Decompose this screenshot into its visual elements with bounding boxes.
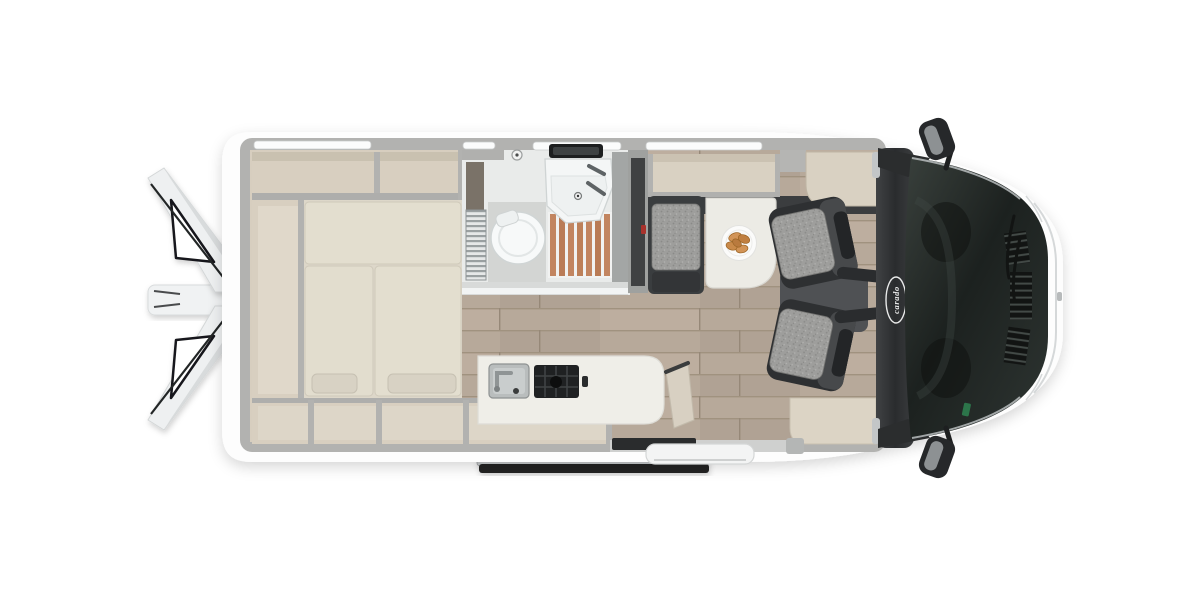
bathroom-sink: [545, 159, 613, 223]
kitchen-sink: [489, 364, 529, 398]
tambour-door: [466, 210, 486, 280]
pillar-foot: [786, 438, 804, 454]
entry-step: [646, 444, 754, 464]
dining-table: [706, 198, 776, 288]
bed-pillow-left: [312, 374, 357, 393]
seatbelt-buckle: [641, 225, 646, 234]
bathroom-floor-strip: [466, 162, 484, 210]
bathroom: [462, 150, 630, 295]
burner: [550, 376, 562, 388]
window-strip-small: [463, 142, 495, 149]
bed-pillow-right: [388, 374, 456, 393]
bed: [304, 200, 462, 398]
carado-badge-text: carado: [891, 286, 901, 314]
window-strip-rear: [254, 141, 371, 149]
overhead-cabinet-front: [648, 154, 780, 197]
bathroom-skylight: [549, 144, 603, 158]
wardrobe: [628, 150, 648, 293]
bed-cushion-top: [305, 202, 461, 264]
cab-overhead-shelf: [806, 152, 878, 206]
floorplan-image: carado: [0, 0, 1200, 600]
hob-knob: [582, 376, 588, 387]
entry-pillar: [790, 398, 876, 444]
dinette-bench: [648, 196, 704, 294]
wall-step: [780, 150, 806, 172]
bathroom-right-wall: [612, 152, 628, 294]
storage-left-column: [252, 200, 304, 400]
camper-floorplan-svg: carado: [0, 0, 1200, 600]
window-strip-front: [646, 142, 762, 150]
bench-cushion: [652, 204, 700, 270]
front-badge-notch: [1057, 292, 1062, 301]
kitchen-drain: [513, 388, 519, 394]
